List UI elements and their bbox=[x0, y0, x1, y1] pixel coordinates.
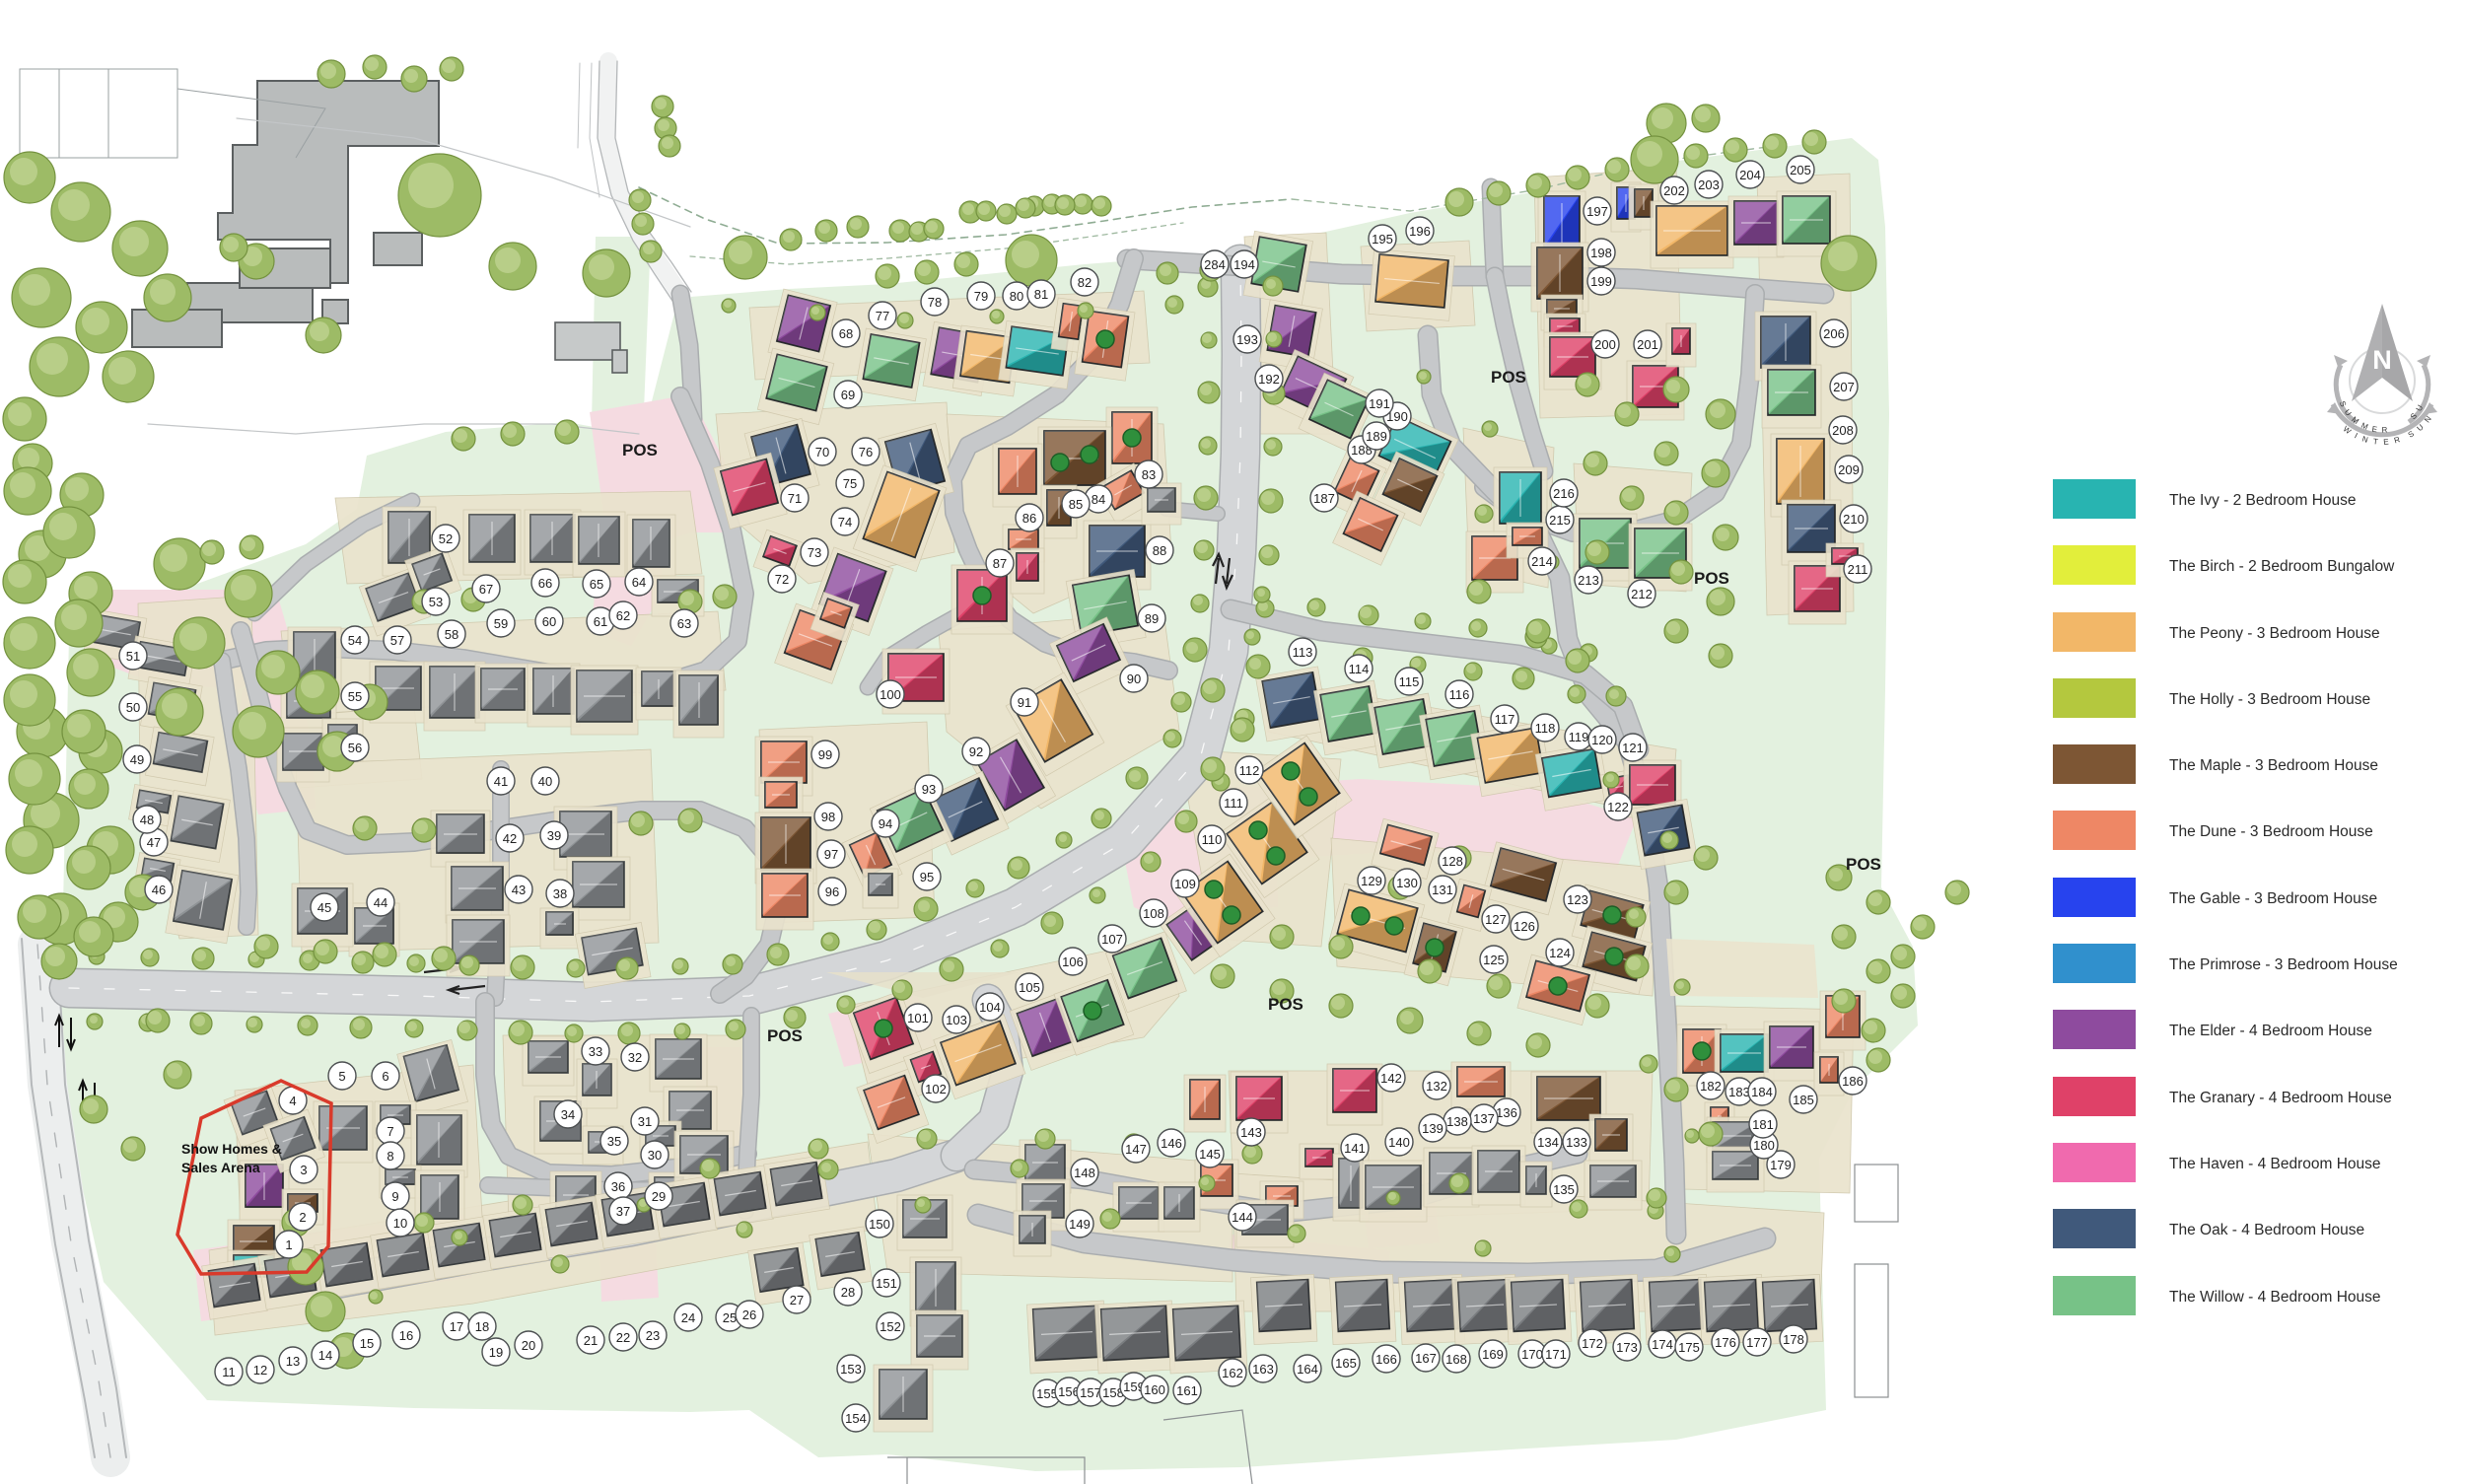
svg-text:48: 48 bbox=[140, 813, 154, 827]
svg-text:99: 99 bbox=[818, 747, 832, 762]
svg-text:145: 145 bbox=[1199, 1147, 1221, 1162]
svg-text:85: 85 bbox=[1069, 497, 1083, 512]
svg-text:201: 201 bbox=[1637, 337, 1658, 352]
svg-text:64: 64 bbox=[632, 575, 646, 590]
svg-text:29: 29 bbox=[652, 1189, 666, 1204]
svg-text:25: 25 bbox=[723, 1310, 737, 1325]
svg-text:183: 183 bbox=[1728, 1085, 1750, 1099]
svg-text:184: 184 bbox=[1751, 1085, 1773, 1099]
svg-text:POS: POS bbox=[1694, 569, 1729, 588]
svg-text:214: 214 bbox=[1531, 554, 1553, 569]
svg-text:37: 37 bbox=[616, 1204, 630, 1219]
svg-text:65: 65 bbox=[590, 577, 603, 592]
svg-text:83: 83 bbox=[1142, 467, 1156, 482]
svg-text:125: 125 bbox=[1483, 953, 1505, 967]
svg-text:146: 146 bbox=[1161, 1136, 1182, 1151]
svg-text:89: 89 bbox=[1145, 611, 1159, 626]
svg-text:17: 17 bbox=[450, 1319, 463, 1334]
svg-text:15: 15 bbox=[360, 1336, 374, 1351]
svg-text:123: 123 bbox=[1567, 892, 1588, 907]
svg-text:24: 24 bbox=[681, 1310, 695, 1325]
svg-text:53: 53 bbox=[429, 595, 443, 609]
svg-text:110: 110 bbox=[1202, 832, 1223, 847]
svg-text:POS: POS bbox=[1268, 995, 1303, 1014]
svg-text:55: 55 bbox=[348, 689, 362, 704]
svg-text:104: 104 bbox=[979, 1000, 1001, 1015]
svg-text:152: 152 bbox=[880, 1319, 901, 1334]
svg-text:2: 2 bbox=[299, 1210, 306, 1225]
svg-text:POS: POS bbox=[622, 441, 658, 459]
svg-text:12: 12 bbox=[253, 1363, 267, 1378]
svg-text:91: 91 bbox=[1018, 695, 1031, 710]
svg-text:198: 198 bbox=[1590, 246, 1612, 260]
svg-text:68: 68 bbox=[839, 326, 853, 341]
svg-text:The Granary - 4 Bedroom House: The Granary - 4 Bedroom House bbox=[2169, 1090, 2392, 1106]
svg-text:142: 142 bbox=[1380, 1071, 1402, 1086]
svg-text:207: 207 bbox=[1833, 380, 1855, 394]
svg-text:216: 216 bbox=[1553, 486, 1575, 501]
svg-text:6: 6 bbox=[382, 1069, 388, 1084]
svg-text:107: 107 bbox=[1101, 932, 1123, 947]
svg-text:187: 187 bbox=[1313, 491, 1335, 506]
svg-text:54: 54 bbox=[348, 633, 362, 648]
svg-text:The Oak - 4 Bedroom House: The Oak - 4 Bedroom House bbox=[2169, 1222, 2364, 1238]
svg-text:57: 57 bbox=[390, 633, 404, 648]
svg-text:69: 69 bbox=[841, 388, 855, 402]
svg-text:101: 101 bbox=[907, 1011, 929, 1025]
svg-text:28: 28 bbox=[841, 1285, 855, 1300]
svg-text:171: 171 bbox=[1545, 1347, 1567, 1362]
svg-text:197: 197 bbox=[1586, 204, 1608, 219]
svg-text:42: 42 bbox=[503, 831, 517, 846]
svg-text:173: 173 bbox=[1616, 1340, 1638, 1355]
svg-text:86: 86 bbox=[1022, 511, 1036, 526]
svg-text:147: 147 bbox=[1125, 1142, 1147, 1157]
svg-text:108: 108 bbox=[1143, 906, 1164, 921]
svg-text:The Birch - 2 Bedroom Bungalow: The Birch - 2 Bedroom Bungalow bbox=[2169, 558, 2395, 575]
svg-text:61: 61 bbox=[594, 614, 607, 629]
svg-text:168: 168 bbox=[1445, 1352, 1467, 1367]
svg-text:192: 192 bbox=[1258, 372, 1280, 387]
svg-text:161: 161 bbox=[1176, 1383, 1198, 1398]
svg-text:75: 75 bbox=[843, 476, 857, 491]
svg-text:8: 8 bbox=[387, 1149, 393, 1164]
svg-text:137: 137 bbox=[1473, 1111, 1495, 1126]
svg-text:7: 7 bbox=[387, 1124, 393, 1139]
svg-text:186: 186 bbox=[1842, 1074, 1864, 1089]
svg-text:79: 79 bbox=[974, 289, 988, 304]
svg-text:144: 144 bbox=[1232, 1210, 1253, 1225]
svg-text:181: 181 bbox=[1752, 1117, 1774, 1132]
svg-text:56: 56 bbox=[348, 741, 362, 755]
svg-text:3: 3 bbox=[300, 1163, 307, 1177]
svg-text:80: 80 bbox=[1010, 289, 1023, 304]
svg-text:16: 16 bbox=[399, 1328, 413, 1343]
svg-text:The Elder - 4 Bedroom House: The Elder - 4 Bedroom House bbox=[2169, 1023, 2372, 1039]
svg-text:62: 62 bbox=[616, 608, 630, 623]
svg-text:165: 165 bbox=[1335, 1356, 1357, 1371]
svg-text:72: 72 bbox=[775, 572, 789, 587]
svg-text:204: 204 bbox=[1739, 168, 1761, 182]
svg-text:The Dune - 3 Bedroom House: The Dune - 3 Bedroom House bbox=[2169, 823, 2373, 840]
svg-text:27: 27 bbox=[790, 1293, 804, 1307]
svg-text:109: 109 bbox=[1174, 877, 1196, 891]
svg-text:117: 117 bbox=[1495, 712, 1515, 727]
svg-text:203: 203 bbox=[1698, 177, 1720, 192]
svg-text:81: 81 bbox=[1034, 287, 1048, 302]
svg-text:136: 136 bbox=[1496, 1105, 1517, 1120]
svg-text:31: 31 bbox=[638, 1114, 652, 1129]
svg-text:14: 14 bbox=[318, 1348, 332, 1363]
svg-text:45: 45 bbox=[317, 900, 331, 915]
svg-text:5: 5 bbox=[338, 1069, 345, 1084]
svg-text:92: 92 bbox=[969, 744, 983, 759]
svg-text:21: 21 bbox=[584, 1333, 598, 1348]
svg-text:182: 182 bbox=[1700, 1079, 1722, 1094]
svg-text:126: 126 bbox=[1514, 919, 1535, 934]
svg-text:119: 119 bbox=[1569, 730, 1589, 744]
svg-text:The Holly - 3 Bedroom House: The Holly - 3 Bedroom House bbox=[2169, 691, 2370, 708]
svg-text:151: 151 bbox=[876, 1276, 897, 1291]
svg-text:106: 106 bbox=[1062, 954, 1084, 969]
svg-text:138: 138 bbox=[1446, 1114, 1468, 1129]
svg-text:11: 11 bbox=[222, 1365, 236, 1379]
svg-text:71: 71 bbox=[788, 491, 802, 506]
svg-text:67: 67 bbox=[479, 582, 493, 597]
svg-text:40: 40 bbox=[538, 774, 552, 789]
svg-text:97: 97 bbox=[824, 847, 838, 862]
svg-text:177: 177 bbox=[1746, 1335, 1768, 1350]
svg-text:176: 176 bbox=[1715, 1335, 1736, 1350]
svg-text:93: 93 bbox=[922, 782, 936, 797]
svg-text:39: 39 bbox=[547, 828, 561, 843]
svg-text:143: 143 bbox=[1240, 1125, 1262, 1140]
svg-text:POS: POS bbox=[1491, 368, 1526, 387]
svg-text:116: 116 bbox=[1449, 687, 1470, 702]
svg-text:199: 199 bbox=[1590, 274, 1612, 289]
svg-text:150: 150 bbox=[869, 1217, 890, 1232]
svg-text:127: 127 bbox=[1485, 912, 1507, 927]
svg-text:148: 148 bbox=[1074, 1166, 1095, 1180]
svg-text:44: 44 bbox=[374, 895, 387, 910]
svg-text:60: 60 bbox=[542, 614, 556, 629]
svg-text:132: 132 bbox=[1426, 1079, 1447, 1094]
svg-text:200: 200 bbox=[1594, 337, 1616, 352]
svg-text:74: 74 bbox=[838, 515, 852, 530]
svg-text:41: 41 bbox=[494, 774, 508, 789]
svg-text:180: 180 bbox=[1753, 1138, 1775, 1153]
svg-text:1: 1 bbox=[285, 1237, 292, 1252]
svg-text:18: 18 bbox=[475, 1319, 489, 1334]
svg-text:58: 58 bbox=[445, 627, 458, 642]
svg-text:23: 23 bbox=[646, 1328, 660, 1343]
svg-text:The Gable - 3 Bedroom House: The Gable - 3 Bedroom House bbox=[2169, 890, 2377, 907]
svg-text:52: 52 bbox=[439, 531, 453, 546]
svg-text:33: 33 bbox=[589, 1044, 602, 1059]
svg-text:131: 131 bbox=[1432, 883, 1453, 897]
svg-text:174: 174 bbox=[1652, 1337, 1673, 1352]
svg-text:84: 84 bbox=[1092, 492, 1105, 507]
svg-text:140: 140 bbox=[1388, 1135, 1410, 1150]
svg-text:206: 206 bbox=[1823, 326, 1845, 341]
svg-text:167: 167 bbox=[1415, 1351, 1437, 1366]
svg-text:209: 209 bbox=[1838, 462, 1860, 477]
svg-text:210: 210 bbox=[1843, 512, 1865, 527]
svg-text:179: 179 bbox=[1770, 1158, 1792, 1172]
svg-text:51: 51 bbox=[126, 649, 140, 664]
svg-text:35: 35 bbox=[607, 1134, 621, 1149]
svg-text:113: 113 bbox=[1293, 645, 1313, 660]
svg-text:36: 36 bbox=[611, 1179, 625, 1194]
svg-text:Show Homes &: Show Homes & bbox=[181, 1141, 282, 1157]
svg-text:102: 102 bbox=[925, 1082, 947, 1096]
svg-text:43: 43 bbox=[512, 883, 526, 897]
svg-text:78: 78 bbox=[928, 295, 942, 310]
svg-text:208: 208 bbox=[1832, 423, 1854, 438]
svg-text:105: 105 bbox=[1019, 980, 1040, 995]
svg-text:191: 191 bbox=[1369, 396, 1390, 411]
svg-text:50: 50 bbox=[126, 700, 140, 715]
svg-text:154: 154 bbox=[845, 1411, 867, 1426]
svg-text:169: 169 bbox=[1482, 1347, 1504, 1362]
svg-text:196: 196 bbox=[1409, 224, 1431, 239]
svg-text:114: 114 bbox=[1349, 662, 1370, 676]
svg-text:141: 141 bbox=[1344, 1141, 1366, 1156]
svg-text:The Ivy - 2 Bedroom House: The Ivy - 2 Bedroom House bbox=[2169, 492, 2357, 509]
svg-text:59: 59 bbox=[494, 616, 508, 631]
svg-text:213: 213 bbox=[1578, 573, 1599, 588]
svg-text:139: 139 bbox=[1422, 1121, 1444, 1136]
svg-text:66: 66 bbox=[538, 576, 552, 591]
svg-text:163: 163 bbox=[1252, 1362, 1274, 1377]
svg-text:215: 215 bbox=[1549, 513, 1571, 528]
svg-text:175: 175 bbox=[1678, 1340, 1700, 1355]
svg-text:284: 284 bbox=[1204, 257, 1226, 272]
svg-text:118: 118 bbox=[1535, 721, 1556, 736]
svg-text:32: 32 bbox=[628, 1050, 642, 1065]
svg-text:13: 13 bbox=[286, 1354, 300, 1369]
svg-text:205: 205 bbox=[1790, 163, 1811, 177]
svg-text:46: 46 bbox=[152, 883, 166, 897]
svg-text:133: 133 bbox=[1566, 1135, 1587, 1150]
svg-text:70: 70 bbox=[815, 445, 829, 459]
svg-text:The Peony - 3 Bedroom House: The Peony - 3 Bedroom House bbox=[2169, 625, 2380, 642]
svg-text:82: 82 bbox=[1078, 275, 1092, 290]
svg-text:212: 212 bbox=[1631, 587, 1653, 601]
svg-text:The Maple - 3 Bedroom House: The Maple - 3 Bedroom House bbox=[2169, 757, 2378, 774]
svg-text:160: 160 bbox=[1144, 1382, 1165, 1397]
svg-text:94: 94 bbox=[879, 816, 892, 831]
svg-text:76: 76 bbox=[859, 445, 873, 459]
svg-text:134: 134 bbox=[1537, 1135, 1559, 1150]
svg-text:124: 124 bbox=[1549, 946, 1571, 960]
svg-text:63: 63 bbox=[677, 616, 691, 631]
svg-text:96: 96 bbox=[825, 884, 839, 899]
svg-text:120: 120 bbox=[1591, 733, 1613, 747]
svg-text:49: 49 bbox=[130, 752, 144, 767]
svg-text:26: 26 bbox=[742, 1307, 756, 1322]
svg-text:The Haven - 4 Bedroom House: The Haven - 4 Bedroom House bbox=[2169, 1156, 2381, 1172]
svg-text:170: 170 bbox=[1521, 1347, 1543, 1362]
svg-text:189: 189 bbox=[1366, 429, 1387, 444]
svg-text:153: 153 bbox=[840, 1362, 862, 1377]
svg-text:178: 178 bbox=[1783, 1332, 1804, 1347]
svg-text:20: 20 bbox=[522, 1338, 535, 1353]
svg-text:9: 9 bbox=[391, 1189, 398, 1204]
svg-text:195: 195 bbox=[1372, 232, 1393, 247]
svg-text:POS: POS bbox=[767, 1026, 803, 1045]
svg-text:166: 166 bbox=[1375, 1352, 1397, 1367]
svg-text:111: 111 bbox=[1224, 796, 1243, 811]
svg-text:211: 211 bbox=[1848, 562, 1868, 577]
svg-text:122: 122 bbox=[1607, 800, 1629, 814]
svg-text:90: 90 bbox=[1127, 671, 1141, 686]
svg-text:The Primrose - 3 Bedroom House: The Primrose - 3 Bedroom House bbox=[2169, 956, 2398, 973]
svg-text:135: 135 bbox=[1553, 1182, 1575, 1197]
svg-text:Sales Arena: Sales Arena bbox=[181, 1160, 260, 1175]
svg-text:73: 73 bbox=[808, 545, 821, 560]
svg-text:185: 185 bbox=[1793, 1093, 1814, 1107]
svg-text:121: 121 bbox=[1622, 741, 1644, 755]
svg-text:98: 98 bbox=[821, 810, 835, 824]
svg-text:88: 88 bbox=[1153, 543, 1166, 558]
svg-text:194: 194 bbox=[1233, 257, 1255, 272]
svg-text:162: 162 bbox=[1222, 1366, 1243, 1380]
svg-text:4: 4 bbox=[289, 1094, 296, 1108]
svg-text:77: 77 bbox=[876, 309, 889, 323]
svg-text:22: 22 bbox=[616, 1330, 630, 1345]
svg-text:87: 87 bbox=[993, 556, 1007, 571]
svg-text:130: 130 bbox=[1396, 876, 1418, 890]
svg-text:149: 149 bbox=[1069, 1217, 1091, 1232]
svg-text:129: 129 bbox=[1361, 874, 1382, 888]
svg-text:95: 95 bbox=[920, 870, 934, 884]
svg-text:115: 115 bbox=[1399, 674, 1420, 689]
svg-text:19: 19 bbox=[489, 1345, 503, 1360]
svg-text:202: 202 bbox=[1663, 183, 1685, 198]
svg-text:N: N bbox=[2372, 345, 2392, 375]
svg-text:172: 172 bbox=[1582, 1336, 1603, 1351]
svg-text:112: 112 bbox=[1239, 763, 1260, 778]
svg-text:The Willow - 4 Bedroom House: The Willow - 4 Bedroom House bbox=[2169, 1289, 2381, 1306]
svg-text:34: 34 bbox=[561, 1107, 575, 1122]
svg-text:47: 47 bbox=[147, 835, 161, 850]
svg-text:POS: POS bbox=[1846, 855, 1881, 874]
svg-text:38: 38 bbox=[553, 886, 567, 901]
svg-text:157: 157 bbox=[1080, 1385, 1101, 1400]
svg-text:128: 128 bbox=[1442, 854, 1463, 869]
svg-text:10: 10 bbox=[393, 1216, 407, 1231]
svg-text:193: 193 bbox=[1236, 332, 1258, 347]
svg-text:164: 164 bbox=[1297, 1362, 1318, 1377]
svg-text:30: 30 bbox=[648, 1148, 662, 1163]
svg-text:100: 100 bbox=[880, 687, 901, 702]
svg-text:103: 103 bbox=[946, 1013, 967, 1027]
